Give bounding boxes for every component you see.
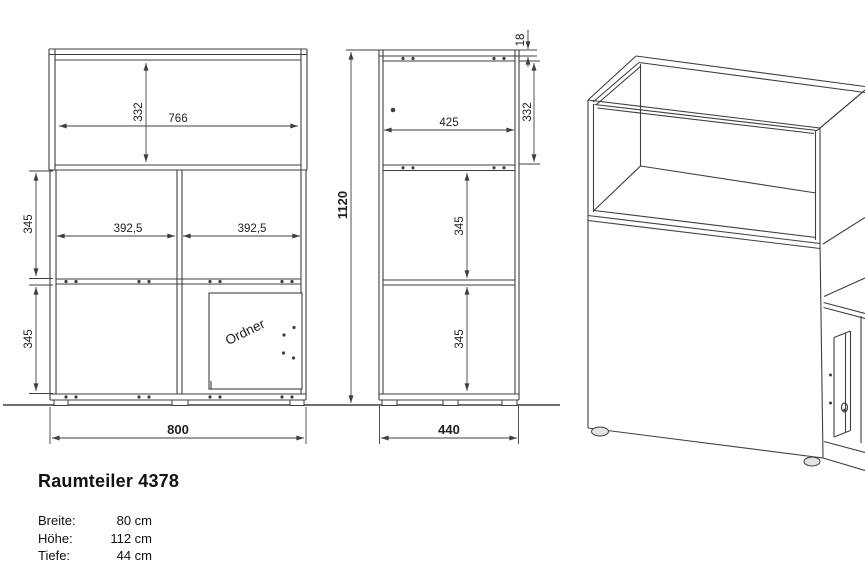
spec-value-tiefe: 44 cm	[100, 548, 152, 566]
dim-side-inner-depth: 425	[384, 117, 514, 130]
spec-value-breite: 80 cm	[100, 513, 152, 531]
dim-front-lower-compartment: 345	[23, 285, 53, 394]
spec-row-breite: Breite: 80 cm	[38, 513, 152, 531]
svg-text:332: 332	[522, 102, 534, 121]
svg-text:1120: 1120	[335, 191, 350, 219]
dim-total-depth: 440	[380, 406, 519, 444]
spec-label-hoehe: Höhe:	[38, 531, 100, 549]
spec-label-breite: Breite:	[38, 513, 100, 531]
side-elevation-view: 18 332 425 345 345 1120	[335, 30, 540, 444]
dim-front-top-inner-height: 332	[133, 63, 146, 162]
svg-text:345: 345	[454, 329, 466, 348]
spec-row-tiefe: Tiefe: 44 cm	[38, 548, 152, 566]
product-specs: Breite: 80 cm Höhe: 112 cm Tiefe: 44 cm	[38, 513, 152, 566]
svg-text:18: 18	[515, 34, 527, 47]
perspective-top-shelf-box	[588, 56, 865, 428]
dim-front-total-width: 800	[50, 407, 306, 444]
dim-total-height: 1120	[335, 50, 379, 403]
svg-text:440: 440	[438, 422, 460, 437]
cam-lock-hole	[391, 108, 396, 113]
dim-side-upper-compartment: 345	[454, 173, 467, 278]
svg-text:392,5: 392,5	[238, 223, 267, 235]
spec-value-hoehe: 112 cm	[100, 531, 152, 549]
spec-row-hoehe: Höhe: 112 cm	[38, 531, 152, 549]
perspective-lower-cabinet	[588, 218, 865, 471]
dim-front-left-compartment-width: 392,5	[57, 223, 175, 236]
side-structure-lines	[379, 50, 519, 400]
dim-front-upper-compartment: 345	[23, 171, 53, 279]
perspective-binder	[829, 331, 851, 437]
front-elevation-view: Ordner 332 766 345 345	[23, 49, 307, 444]
dim-front-inner-width: 766	[59, 113, 298, 126]
svg-text:766: 766	[168, 113, 187, 125]
side-shelf-dowel-dots	[401, 57, 505, 169]
svg-text:345: 345	[23, 214, 35, 233]
svg-text:332: 332	[133, 102, 145, 121]
spec-label-tiefe: Tiefe:	[38, 548, 100, 566]
svg-text:800: 800	[167, 422, 189, 437]
technical-drawing-page: Ordner 332 766 345 345	[0, 0, 865, 588]
ordner-door: Ordner	[209, 293, 302, 389]
svg-text:425: 425	[439, 117, 458, 129]
dim-front-right-compartment-width: 392,5	[183, 223, 300, 236]
perspective-view	[588, 56, 865, 471]
product-info: Raumteiler 4378 Breite: 80 cm Höhe: 112 …	[38, 471, 179, 566]
svg-text:345: 345	[23, 329, 35, 348]
svg-text:392,5: 392,5	[114, 223, 143, 235]
svg-text:345: 345	[454, 216, 466, 235]
dim-side-lower-compartment: 345	[454, 287, 467, 391]
dim-side-top-inner-height: 332	[519, 61, 540, 164]
product-title: Raumteiler 4378	[38, 471, 179, 492]
